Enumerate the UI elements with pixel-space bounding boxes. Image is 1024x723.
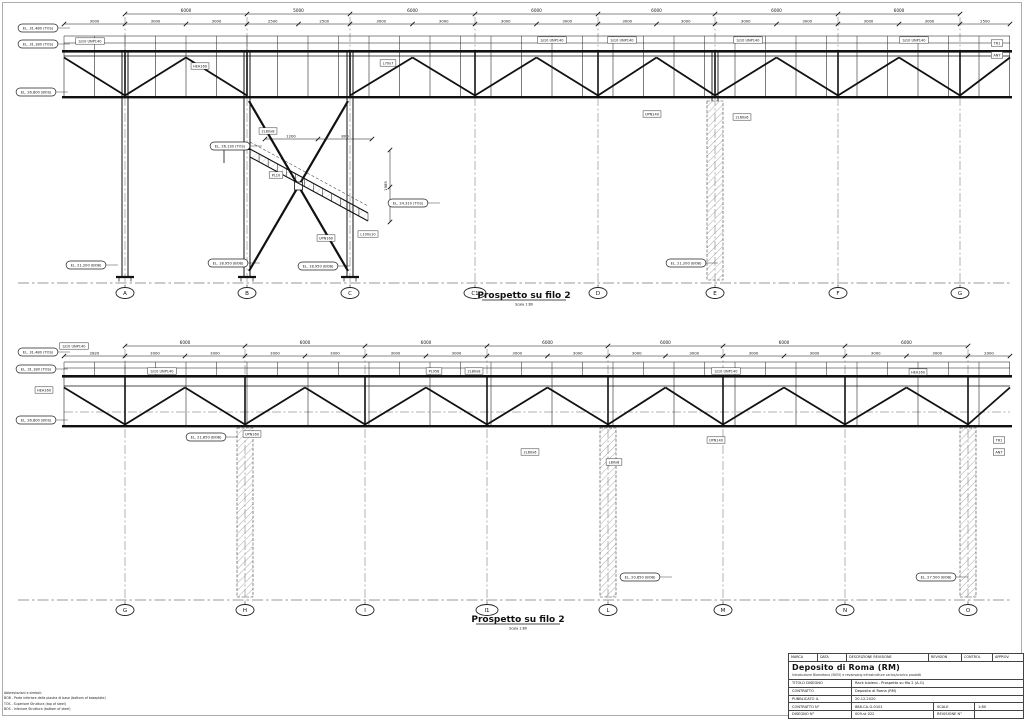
svg-text:3000: 3000 xyxy=(270,350,280,355)
elevation-tags: EL. 31.480 (TOS)EL. 31.180 (TOS)EL. 26.8… xyxy=(16,348,968,581)
svg-text:G: G xyxy=(958,291,962,297)
svg-text:EL. 31.480 (TOS): EL. 31.480 (TOS) xyxy=(23,350,54,354)
svg-text:I1: I1 xyxy=(484,608,489,614)
col-descrizione: DESCRIZIONE REVISIONE xyxy=(847,654,929,661)
truss xyxy=(62,50,1012,98)
svg-text:HEA160: HEA160 xyxy=(911,370,925,374)
svg-text:3000: 3000 xyxy=(330,350,340,355)
svg-text:3000: 3000 xyxy=(562,18,572,23)
svg-text:EL. 26.800 (BOS): EL. 26.800 (BOS) xyxy=(21,418,52,422)
titleblock-row-titolo: TITOLO DISEGNO Rack tubiero - Prospetto … xyxy=(789,680,1023,688)
svg-text:6000: 6000 xyxy=(901,340,912,345)
row-value: Rack tubiero - Prospetto su filo 2 (A-G) xyxy=(852,681,1023,685)
project-subtitle: Introduzione Biometano (BIO5) e revampin… xyxy=(792,674,1020,678)
svg-text:L100x10: L100x10 xyxy=(360,232,375,236)
svg-text:EL. 31.180 (TOS): EL. 31.180 (TOS) xyxy=(23,42,54,46)
svg-text:EL. 20.850 (BOB): EL. 20.850 (BOB) xyxy=(625,575,656,579)
svg-text:6000: 6000 xyxy=(421,340,432,345)
project-title: Deposito di Roma (RM) xyxy=(792,663,1020,673)
svg-text:PL10: PL10 xyxy=(272,173,281,177)
row-value: 1:80 xyxy=(975,705,1023,709)
svg-text:S/10 UNP140: S/10 UNP140 xyxy=(151,369,174,373)
svg-text:2L80x8: 2L80x8 xyxy=(262,129,275,133)
svg-text:Prospetto su filo 2: Prospetto su filo 2 xyxy=(471,615,564,625)
svg-text:3000: 3000 xyxy=(151,18,161,23)
svg-text:6000: 6000 xyxy=(771,8,782,13)
svg-text:3000: 3000 xyxy=(376,18,386,23)
svg-text:3000: 3000 xyxy=(501,18,511,23)
stair-dimensions: 12008001985 xyxy=(263,133,392,224)
row-value: 009-st 022 xyxy=(852,712,933,716)
col-revision: REVISION xyxy=(929,654,962,661)
svg-text:3000: 3000 xyxy=(90,18,100,23)
svg-text:3000: 3000 xyxy=(681,18,691,23)
svg-text:3000: 3000 xyxy=(622,18,632,23)
row-label: SCALE xyxy=(933,703,975,710)
svg-text:Scala 1:80: Scala 1:80 xyxy=(509,627,527,631)
row-label: REVISIONE N° xyxy=(933,711,975,718)
svg-text:C: C xyxy=(348,291,352,297)
svg-text:2500: 2500 xyxy=(319,18,329,23)
svg-text:EL. 21.200 (BOB): EL. 21.200 (BOB) xyxy=(671,261,702,265)
steel-columns xyxy=(116,52,359,282)
svg-text:UPN140: UPN140 xyxy=(709,438,723,442)
svg-text:HEA160: HEA160 xyxy=(193,64,207,68)
svg-text:EL. 18.950 (BOB): EL. 18.950 (BOB) xyxy=(213,261,244,265)
svg-text:L80x8: L80x8 xyxy=(609,460,620,464)
titleblock-row-pubblicato: PUBBLICATO IL 20.12.2020 xyxy=(789,696,1023,704)
svg-text:EL. 31.480 (TOS): EL. 31.480 (TOS) xyxy=(23,26,54,30)
svg-text:2500: 2500 xyxy=(268,18,278,23)
svg-text:3000: 3000 xyxy=(212,18,222,23)
svg-text:1985: 1985 xyxy=(383,181,388,191)
walkway-handrail xyxy=(62,362,1012,378)
svg-text:L70x7: L70x7 xyxy=(383,61,394,65)
cad-drawing-canvas: 6000500060006000600060006000300030003000… xyxy=(0,0,1024,723)
svg-text:S/10 UNP140: S/10 UNP140 xyxy=(903,38,926,42)
svg-text:TR1: TR1 xyxy=(993,41,1001,45)
svg-text:G: G xyxy=(123,608,127,614)
svg-text:6000: 6000 xyxy=(407,8,418,13)
svg-text:EL. 21.850 (BOB): EL. 21.850 (BOB) xyxy=(191,435,222,439)
svg-text:S/10 UNP140: S/10 UNP140 xyxy=(79,39,102,43)
svg-text:S/10 UNP140: S/10 UNP140 xyxy=(63,344,86,348)
svg-text:Prospetto su filo 2: Prospetto su filo 2 xyxy=(477,291,570,301)
svg-text:6000: 6000 xyxy=(542,340,553,345)
svg-text:3000: 3000 xyxy=(150,350,160,355)
svg-text:6000: 6000 xyxy=(181,8,192,13)
svg-text:TR1: TR1 xyxy=(995,438,1003,442)
svg-text:6000: 6000 xyxy=(651,8,662,13)
truss xyxy=(62,375,1012,427)
col-marca: MARCA xyxy=(789,654,818,661)
row-label: DISEGNO N° xyxy=(789,711,852,718)
col-control: CONTROL xyxy=(962,654,993,661)
svg-text:UPN140: UPN140 xyxy=(645,112,659,116)
svg-text:F: F xyxy=(836,291,839,297)
svg-text:6000: 6000 xyxy=(660,340,671,345)
row-value: 20.12.2020 xyxy=(852,697,1023,701)
svg-text:2L60x6: 2L60x6 xyxy=(524,450,537,454)
svg-text:3000: 3000 xyxy=(749,350,759,355)
svg-text:6000: 6000 xyxy=(531,8,542,13)
sheet-border xyxy=(3,3,1022,716)
view-bottom: 6000600060006000600060006000282030003000… xyxy=(16,340,1012,630)
svg-text:6000: 6000 xyxy=(300,340,311,345)
svg-text:S/10 UNP140: S/10 UNP140 xyxy=(715,369,738,373)
svg-text:2500: 2500 xyxy=(980,18,990,23)
grid-bubbles: GHII1LMNO xyxy=(116,602,977,616)
revision-header-row: MARCA DATA DESCRIZIONE REVISIONE REVISIO… xyxy=(789,654,1023,662)
svg-text:UPN160: UPN160 xyxy=(319,236,333,240)
titleblock-row-contratto: CONTRATTO Deposito di Roma (RM) xyxy=(789,688,1023,696)
svg-text:S/10 UNP140: S/10 UNP140 xyxy=(541,38,564,42)
svg-text:Scala 1:80: Scala 1:80 xyxy=(515,303,533,307)
row-label: CONTRATTO N° xyxy=(789,703,852,710)
svg-text:3000: 3000 xyxy=(932,350,942,355)
drawing-sheet: 6000500060006000600060006000300030003000… xyxy=(0,0,1024,723)
svg-text:3000: 3000 xyxy=(452,350,462,355)
svg-text:H: H xyxy=(243,608,247,614)
svg-text:EL. 31.180 (TOS): EL. 31.180 (TOS) xyxy=(21,367,52,371)
title-block: MARCA DATA DESCRIZIONE REVISIONE REVISIO… xyxy=(788,653,1024,719)
svg-text:6000: 6000 xyxy=(894,8,905,13)
svg-text:EL. 27.500 (BOB): EL. 27.500 (BOB) xyxy=(921,575,952,579)
svg-text:S/10 UNP140: S/10 UNP140 xyxy=(611,38,634,42)
svg-text:3000: 3000 xyxy=(925,18,935,23)
svg-text:EL. 24.310 (TOS): EL. 24.310 (TOS) xyxy=(393,201,424,205)
svg-text:N: N xyxy=(843,608,847,614)
svg-text:3000: 3000 xyxy=(439,18,449,23)
row-label: CONTRATTO xyxy=(789,688,852,695)
svg-text:S/10 UNP140: S/10 UNP140 xyxy=(737,38,760,42)
svg-text:1200: 1200 xyxy=(286,133,296,138)
notes-abbreviations: Abbreviazioni e simboli: BOB - Parte inf… xyxy=(4,691,106,713)
titleblock-row-disegno-n: DISEGNO N° 009-st 022 REVISIONE N° xyxy=(789,711,1023,718)
titleblock-row-contratto-n: CONTRATTO N° 888-CA-G-0101 SCALE 1:80 xyxy=(789,703,1023,711)
existing-columns xyxy=(237,428,976,597)
row-label: PUBBLICATO IL xyxy=(789,696,852,703)
view-title: Prospetto su filo 2Scala 1:80 xyxy=(477,291,570,307)
svg-text:EL. 21.200 (BOB): EL. 21.200 (BOB) xyxy=(71,263,102,267)
svg-text:D: D xyxy=(596,291,600,297)
view-top: 6000500060006000600060006000300030003000… xyxy=(16,8,1012,306)
svg-text:HEA160: HEA160 xyxy=(37,388,51,392)
svg-text:3000: 3000 xyxy=(802,18,812,23)
member-tags: S/10 UNP140HEA160L70x7S/10 UNP140S/10 UN… xyxy=(76,37,1003,241)
svg-text:B: B xyxy=(245,291,249,297)
svg-text:PL958: PL958 xyxy=(429,369,440,373)
svg-text:3000: 3000 xyxy=(871,350,881,355)
svg-text:3000: 3000 xyxy=(810,350,820,355)
svg-text:3000: 3000 xyxy=(512,350,522,355)
walkway-handrail xyxy=(62,36,1012,53)
row-value: 888-CA-G-0101 xyxy=(852,705,933,709)
svg-text:6000: 6000 xyxy=(180,340,191,345)
svg-text:AN7: AN7 xyxy=(993,53,1000,57)
project-band: Deposito di Roma (RM) Introduzione Biome… xyxy=(789,662,1023,680)
svg-text:3000: 3000 xyxy=(741,18,751,23)
svg-text:3000: 3000 xyxy=(689,350,699,355)
svg-text:EL. 26.130 (TOS): EL. 26.130 (TOS) xyxy=(215,144,246,148)
svg-text:800: 800 xyxy=(341,133,349,138)
svg-text:2000: 2000 xyxy=(984,350,994,355)
svg-text:EL. 26.800 (BOS): EL. 26.800 (BOS) xyxy=(21,90,52,94)
svg-text:E: E xyxy=(713,291,717,297)
svg-text:O: O xyxy=(966,608,971,614)
svg-text:2L60x6: 2L60x6 xyxy=(736,115,749,119)
svg-text:3000: 3000 xyxy=(391,350,401,355)
col-approv: APPROV. xyxy=(993,654,1023,661)
svg-text:EL. 18.950 (BOB): EL. 18.950 (BOB) xyxy=(303,264,334,268)
view-title: Prospetto su filo 2Scala 1:80 xyxy=(471,615,564,631)
svg-text:2820: 2820 xyxy=(90,350,100,355)
svg-text:A: A xyxy=(123,291,127,297)
stair-detail xyxy=(224,142,368,221)
notes-line: BOS - Inferiore Struttura (bottom of ste… xyxy=(4,707,106,712)
dimensions: 6000600060006000600060006000282030003000… xyxy=(62,340,1012,358)
col-data: DATA xyxy=(818,654,847,661)
svg-text:M: M xyxy=(721,608,726,614)
svg-text:3000: 3000 xyxy=(632,350,642,355)
svg-text:2L80x8: 2L80x8 xyxy=(468,369,481,373)
row-value: Deposito di Roma (RM) xyxy=(852,689,1023,693)
svg-text:3000: 3000 xyxy=(573,350,583,355)
svg-text:5000: 5000 xyxy=(293,8,304,13)
svg-text:UPN160: UPN160 xyxy=(245,432,259,436)
svg-text:3000: 3000 xyxy=(864,18,874,23)
x-bracing xyxy=(249,101,348,271)
row-label: TITOLO DISEGNO xyxy=(789,680,852,687)
svg-text:3000: 3000 xyxy=(210,350,220,355)
svg-text:AN7: AN7 xyxy=(995,450,1002,454)
svg-text:6000: 6000 xyxy=(779,340,790,345)
dimensions: 6000500060006000600060006000300030003000… xyxy=(62,8,1012,26)
